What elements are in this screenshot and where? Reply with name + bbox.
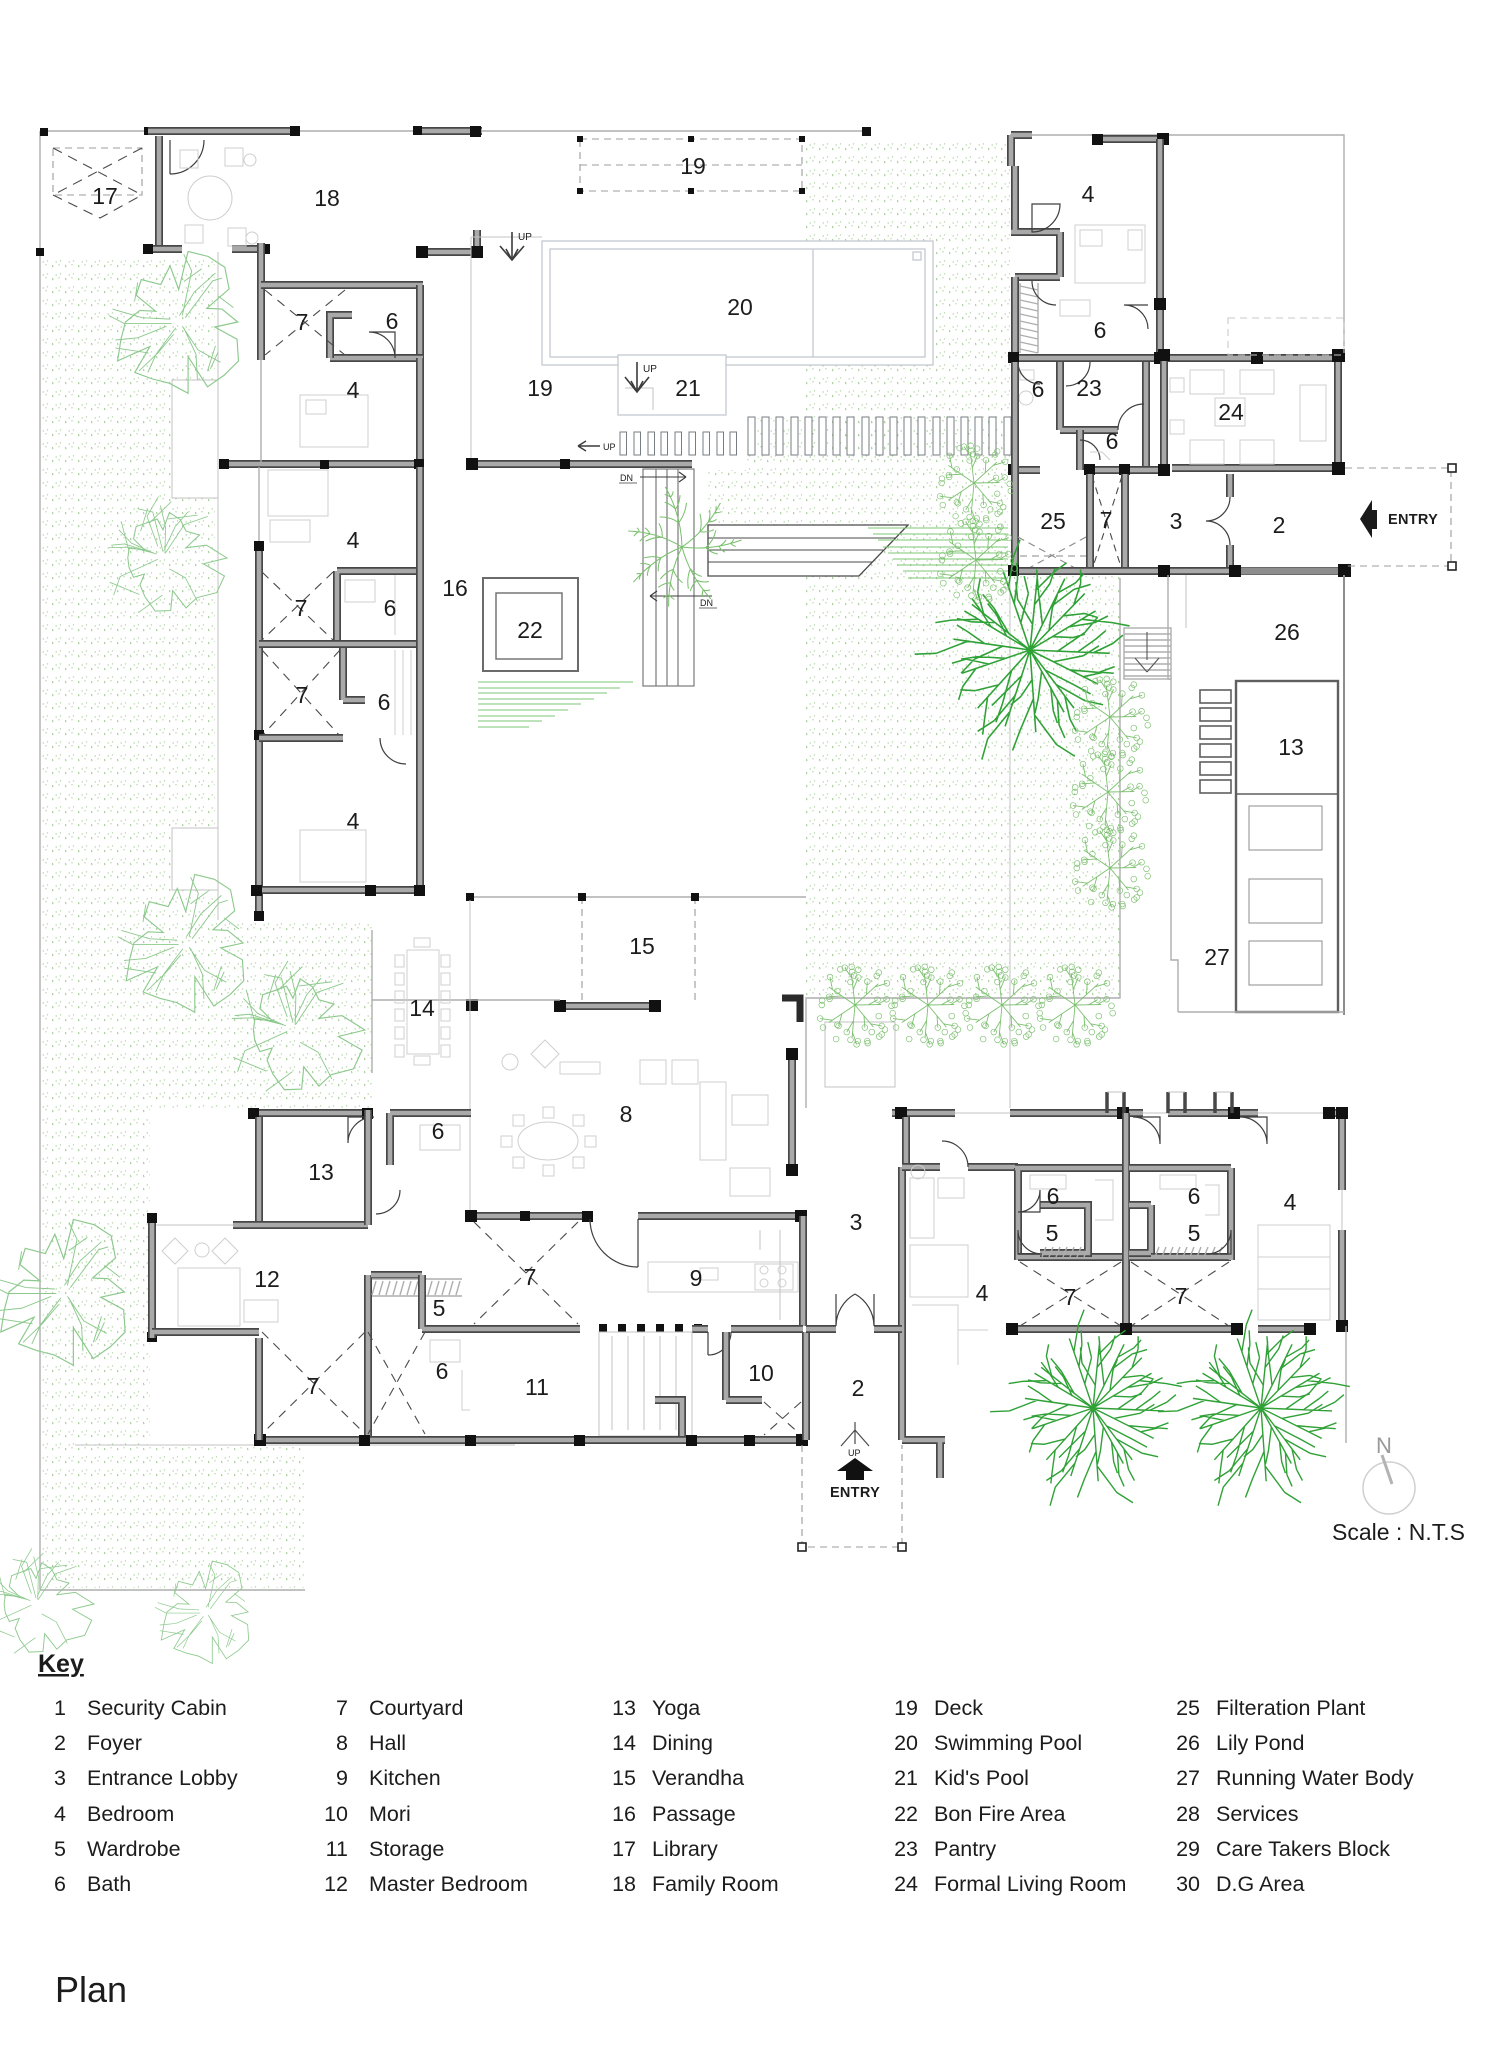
- svg-text:4: 4: [54, 1802, 66, 1826]
- svg-text:12: 12: [324, 1872, 348, 1896]
- svg-text:6: 6: [1094, 317, 1107, 343]
- svg-text:Hall: Hall: [369, 1731, 406, 1755]
- svg-text:Pantry: Pantry: [934, 1837, 996, 1861]
- svg-text:Mori: Mori: [369, 1802, 411, 1826]
- svg-text:UP: UP: [603, 442, 616, 452]
- svg-text:21: 21: [894, 1766, 918, 1790]
- svg-text:4: 4: [347, 377, 360, 403]
- svg-text:7: 7: [295, 595, 308, 621]
- svg-text:17: 17: [92, 183, 118, 209]
- svg-text:25: 25: [1040, 508, 1066, 534]
- svg-text:4: 4: [347, 808, 360, 834]
- svg-text:19: 19: [680, 153, 706, 179]
- svg-text:Plan: Plan: [55, 1969, 127, 2010]
- svg-text:27: 27: [1204, 944, 1230, 970]
- svg-text:16: 16: [612, 1802, 636, 1826]
- svg-text:6: 6: [1106, 428, 1119, 454]
- svg-text:Swimming Pool: Swimming Pool: [934, 1731, 1082, 1755]
- svg-text:11: 11: [326, 1837, 348, 1861]
- svg-text:UP: UP: [643, 364, 657, 375]
- svg-text:Bedroom: Bedroom: [87, 1802, 174, 1826]
- svg-text:7: 7: [307, 1373, 320, 1399]
- svg-text:6: 6: [436, 1358, 449, 1384]
- svg-text:Lily Pond: Lily Pond: [1216, 1731, 1304, 1755]
- svg-text:12: 12: [254, 1266, 280, 1292]
- svg-text:18: 18: [612, 1872, 636, 1896]
- svg-text:7: 7: [336, 1696, 348, 1720]
- svg-text:4: 4: [347, 527, 360, 553]
- svg-text:7: 7: [296, 309, 309, 335]
- svg-text:13: 13: [308, 1159, 334, 1185]
- svg-text:N: N: [1376, 1433, 1392, 1458]
- svg-text:DN: DN: [700, 598, 713, 608]
- svg-text:18: 18: [314, 185, 340, 211]
- svg-text:20: 20: [894, 1731, 918, 1755]
- svg-text:21: 21: [675, 375, 701, 401]
- svg-text:7: 7: [524, 1264, 537, 1290]
- svg-text:22: 22: [517, 617, 543, 643]
- svg-text:16: 16: [442, 575, 468, 601]
- svg-text:Family Room: Family Room: [652, 1872, 779, 1896]
- svg-text:Kid's Pool: Kid's Pool: [934, 1766, 1029, 1790]
- svg-text:Kitchen: Kitchen: [369, 1766, 441, 1790]
- svg-text:5: 5: [433, 1295, 446, 1321]
- svg-text:8: 8: [336, 1731, 348, 1755]
- svg-text:ENTRY: ENTRY: [830, 1485, 880, 1501]
- svg-text:Passage: Passage: [652, 1802, 736, 1826]
- svg-text:4: 4: [1284, 1189, 1297, 1215]
- svg-text:2: 2: [54, 1731, 66, 1755]
- svg-text:26: 26: [1274, 619, 1300, 645]
- svg-text:2: 2: [1273, 512, 1286, 538]
- svg-text:DN: DN: [620, 473, 633, 483]
- svg-text:Scale : N.T.S: Scale : N.T.S: [1332, 1519, 1465, 1545]
- svg-text:4: 4: [1082, 181, 1095, 207]
- svg-text:5: 5: [1188, 1220, 1201, 1246]
- svg-text:9: 9: [690, 1265, 703, 1291]
- svg-text:22: 22: [894, 1802, 918, 1826]
- svg-text:6: 6: [1188, 1183, 1201, 1209]
- svg-text:D.G Area: D.G Area: [1216, 1872, 1304, 1896]
- svg-text:7: 7: [1100, 507, 1113, 533]
- svg-text:Wardrobe: Wardrobe: [87, 1837, 181, 1861]
- svg-text:13: 13: [1278, 734, 1304, 760]
- svg-text:Dining: Dining: [652, 1731, 713, 1755]
- svg-text:Library: Library: [652, 1837, 718, 1861]
- svg-text:Yoga: Yoga: [652, 1696, 700, 1720]
- svg-text:Filteration Plant: Filteration Plant: [1216, 1696, 1365, 1720]
- svg-text:4: 4: [976, 1280, 989, 1306]
- svg-text:Running Water Body: Running Water Body: [1216, 1766, 1414, 1790]
- svg-text:Master Bedroom: Master Bedroom: [369, 1872, 528, 1896]
- svg-text:Courtyard: Courtyard: [369, 1696, 463, 1720]
- svg-text:6: 6: [432, 1118, 445, 1144]
- svg-text:Deck: Deck: [934, 1696, 983, 1720]
- svg-text:7: 7: [296, 682, 309, 708]
- svg-text:14: 14: [612, 1731, 636, 1755]
- svg-text:3: 3: [54, 1766, 66, 1790]
- svg-text:11: 11: [525, 1374, 549, 1400]
- svg-text:24: 24: [1218, 399, 1244, 425]
- svg-text:UP: UP: [848, 1448, 861, 1458]
- svg-text:Care Takers Block: Care Takers Block: [1216, 1837, 1390, 1861]
- svg-text:13: 13: [612, 1696, 636, 1720]
- svg-text:Bath: Bath: [87, 1872, 131, 1896]
- svg-text:Key: Key: [38, 1650, 84, 1678]
- svg-text:Security Cabin: Security Cabin: [87, 1696, 227, 1720]
- svg-text:10: 10: [324, 1802, 348, 1826]
- svg-text:23: 23: [1076, 375, 1102, 401]
- svg-text:26: 26: [1176, 1731, 1200, 1755]
- svg-text:6: 6: [1032, 376, 1045, 402]
- svg-text:20: 20: [727, 294, 753, 320]
- svg-text:19: 19: [527, 375, 553, 401]
- svg-text:27: 27: [1176, 1766, 1200, 1790]
- svg-text:10: 10: [748, 1360, 774, 1386]
- svg-text:Verandha: Verandha: [652, 1766, 744, 1790]
- svg-text:1: 1: [54, 1696, 66, 1720]
- svg-text:6: 6: [384, 595, 397, 621]
- svg-text:28: 28: [1176, 1802, 1200, 1826]
- svg-text:UP: UP: [518, 232, 532, 243]
- svg-text:Foyer: Foyer: [87, 1731, 142, 1755]
- svg-text:23: 23: [894, 1837, 918, 1861]
- svg-text:6: 6: [386, 308, 399, 334]
- svg-text:Storage: Storage: [369, 1837, 444, 1861]
- svg-text:15: 15: [629, 933, 655, 959]
- svg-text:17: 17: [612, 1837, 636, 1861]
- svg-text:5: 5: [54, 1837, 66, 1861]
- svg-text:29: 29: [1176, 1837, 1200, 1861]
- svg-text:15: 15: [612, 1766, 636, 1790]
- svg-text:6: 6: [54, 1872, 66, 1896]
- svg-text:7: 7: [1175, 1283, 1188, 1309]
- svg-text:25: 25: [1176, 1696, 1200, 1720]
- svg-text:Bon Fire Area: Bon Fire Area: [934, 1802, 1065, 1826]
- svg-text:7: 7: [1064, 1284, 1077, 1310]
- svg-text:3: 3: [1170, 508, 1183, 534]
- svg-text:9: 9: [336, 1766, 348, 1790]
- svg-text:2: 2: [852, 1375, 865, 1401]
- svg-text:ENTRY: ENTRY: [1388, 512, 1438, 528]
- svg-text:6: 6: [378, 689, 391, 715]
- svg-text:8: 8: [620, 1101, 633, 1127]
- svg-text:3: 3: [850, 1209, 863, 1235]
- svg-text:Entrance Lobby: Entrance Lobby: [87, 1766, 238, 1790]
- svg-text:24: 24: [894, 1872, 918, 1896]
- svg-text:5: 5: [1046, 1220, 1059, 1246]
- svg-text:Formal Living Room: Formal Living Room: [934, 1872, 1126, 1896]
- svg-text:14: 14: [409, 995, 435, 1021]
- svg-text:Services: Services: [1216, 1802, 1298, 1826]
- svg-text:19: 19: [894, 1696, 918, 1720]
- svg-text:30: 30: [1176, 1872, 1200, 1896]
- svg-text:6: 6: [1047, 1183, 1060, 1209]
